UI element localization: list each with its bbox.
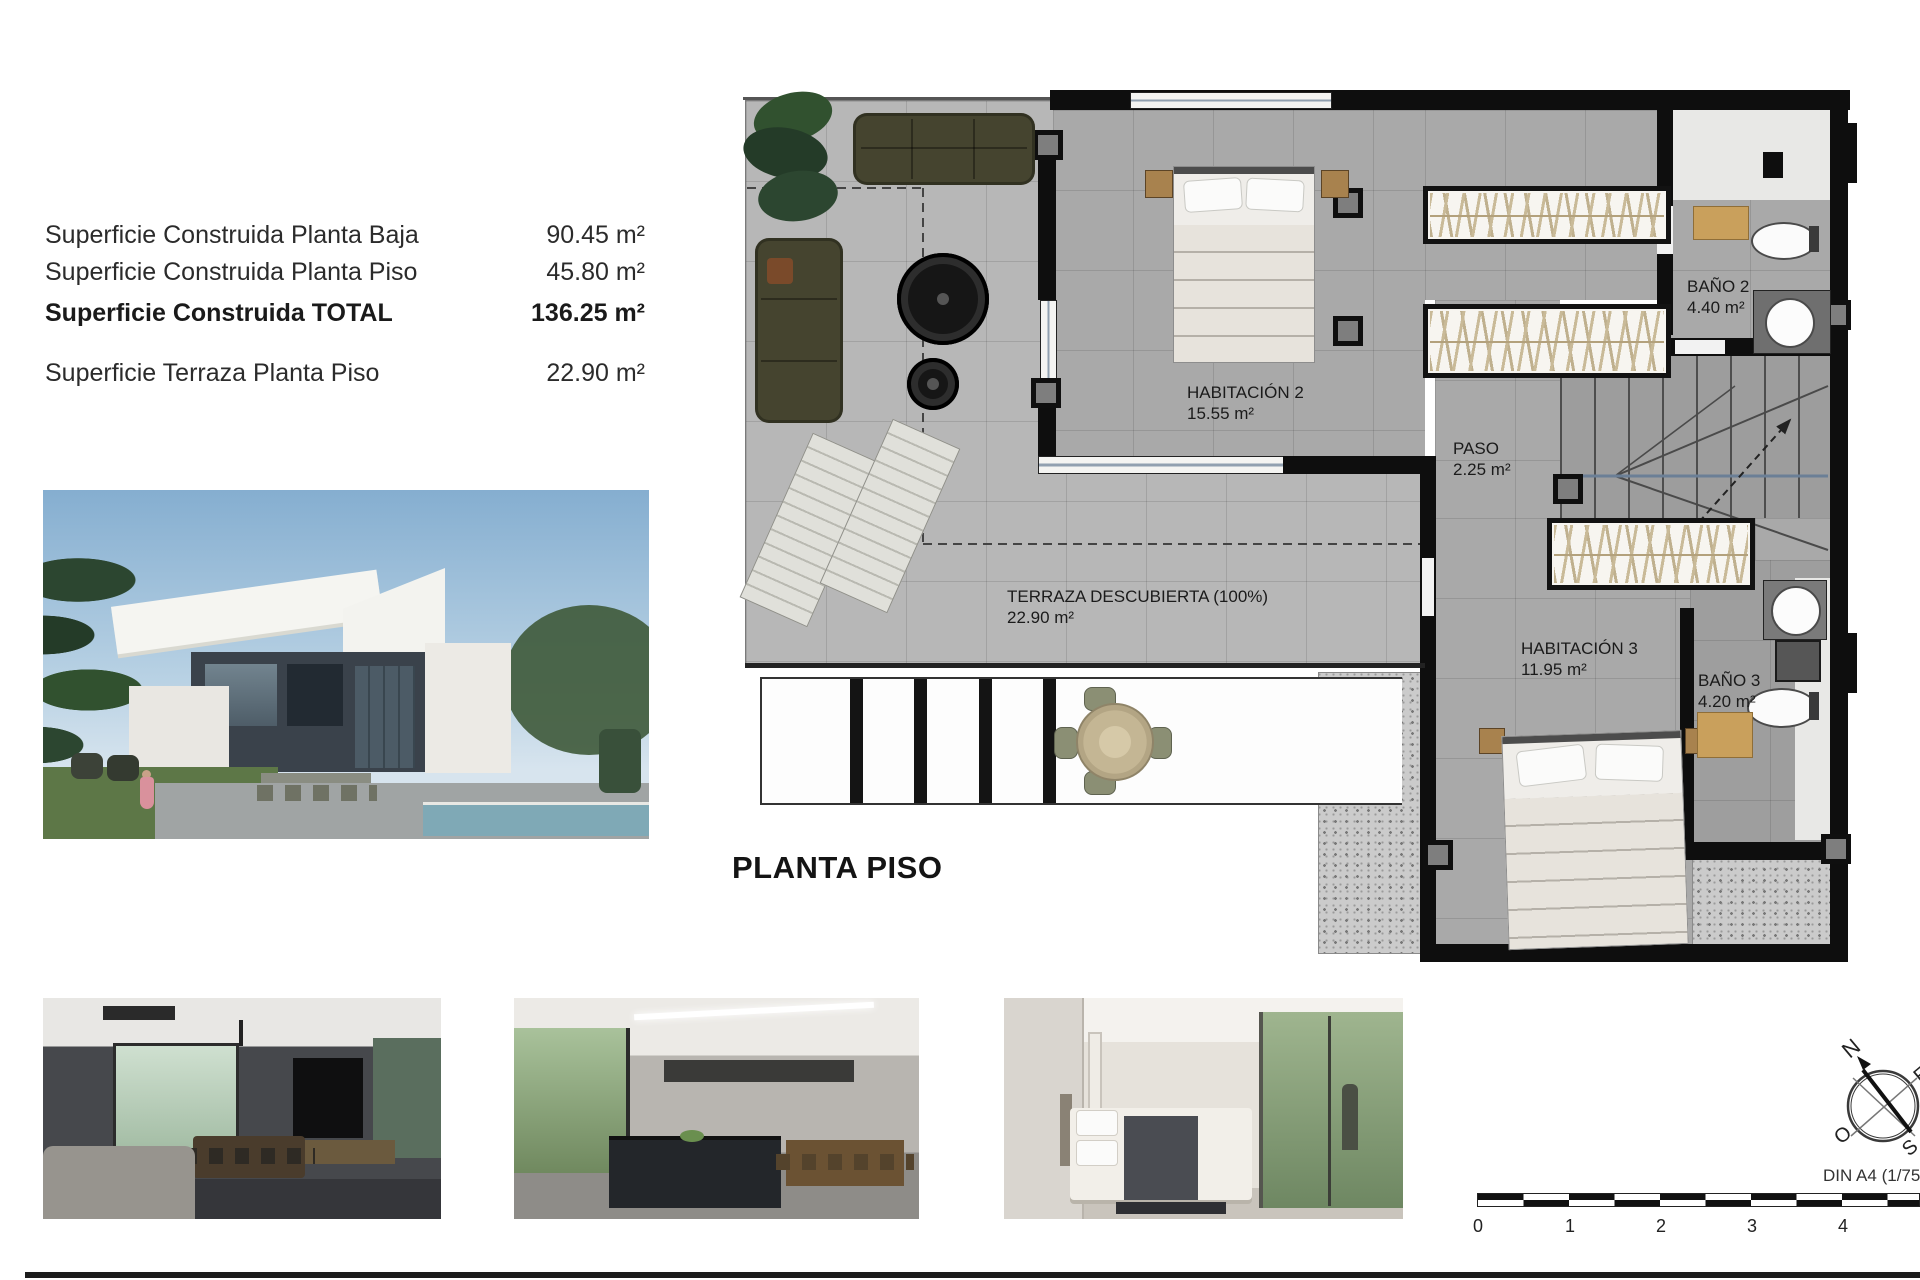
dining-chairs [257, 785, 377, 801]
dining-table [261, 773, 371, 783]
column [1031, 378, 1061, 408]
column [1423, 840, 1453, 870]
room-area: 15.55 m² [1187, 403, 1304, 424]
bottom-rule [25, 1272, 1920, 1278]
scale-bar: 0 1 2 3 4 [1477, 1193, 1920, 1207]
villa-exterior-photo [43, 490, 649, 839]
column [1333, 316, 1363, 346]
wall-fixture-top [1843, 123, 1857, 183]
pendant-lamp [239, 1020, 243, 1046]
bath3-toilet-tank [1809, 692, 1819, 720]
terrace-sofa-left [755, 238, 843, 423]
scale-tick: 1 [1565, 1216, 1575, 1237]
room-name: BAÑO 2 [1687, 276, 1749, 297]
area-row-total: Superficie Construida TOTAL 136.25 m² [45, 300, 645, 327]
area-label: Superficie Construida Planta Baja [45, 222, 419, 249]
bath3-mat [1697, 712, 1753, 758]
facade-window-dark [287, 664, 343, 726]
room-area: 2.25 m² [1453, 459, 1511, 480]
area-value: 136.25 m² [531, 300, 645, 327]
area-label: Superficie Construida TOTAL [45, 300, 393, 327]
room-area: 4.20 m² [1698, 691, 1760, 712]
dining-chairs [776, 1154, 914, 1170]
right-wall [1830, 90, 1848, 962]
area-summary-table: Superficie Construida Planta Baja 90.45 … [45, 222, 645, 387]
kitchen-island [609, 1136, 781, 1208]
din-format-label: DIN A4 (1/75 [1823, 1166, 1920, 1186]
room-name: PASO [1453, 438, 1511, 459]
room-name: HABITACIÓN 3 [1521, 638, 1638, 659]
wall-fixture-mid [1843, 633, 1857, 693]
room-label-bath3: BAÑO 3 4.20 m² [1698, 670, 1760, 712]
bath3-sink [1771, 586, 1821, 636]
interior-photo-living [43, 998, 441, 1219]
column [1033, 130, 1063, 160]
side-wall [425, 643, 511, 773]
area-row: Superficie Construida Planta Baja 90.45 … [45, 222, 645, 249]
area-value: 22.90 m² [546, 360, 645, 387]
room-area: 4.40 m² [1687, 297, 1749, 318]
bath2-toilet [1751, 222, 1817, 260]
room-name: HABITACIÓN 2 [1187, 382, 1304, 403]
room-name: BAÑO 3 [1698, 670, 1760, 691]
outdoor-chair [71, 753, 103, 779]
room-area: 22.90 m² [1007, 607, 1268, 628]
area-label: Superficie Terraza Planta Piso [45, 360, 379, 387]
pergola-chair [1054, 727, 1078, 759]
area-row: Superficie Construida Planta Piso 45.80 … [45, 259, 645, 286]
pillow [1076, 1140, 1118, 1166]
planter [599, 729, 641, 793]
bed-room2 [1173, 166, 1315, 363]
room-label-bath2: BAÑO 2 4.40 m² [1687, 276, 1749, 318]
bed-throw [1124, 1116, 1198, 1200]
bedroom3-left-wall [1420, 456, 1436, 960]
wardrobe [1423, 304, 1671, 378]
nightstand [1145, 170, 1173, 198]
pergola-bar [979, 679, 992, 803]
room-name: TERRAZA DESCUBIERTA (100%) [1007, 586, 1268, 607]
scale-tick: 3 [1747, 1216, 1757, 1237]
terrace-bottom-edge [745, 663, 1425, 668]
area-value: 90.45 m² [546, 222, 645, 249]
bench [1116, 1202, 1226, 1214]
wardrobe [1423, 186, 1671, 244]
scale-tick: 2 [1656, 1216, 1666, 1237]
area-row: Superficie Terraza Planta Piso 22.90 m² [45, 360, 645, 387]
ac-unit [103, 1006, 175, 1020]
pillow [1076, 1110, 1118, 1136]
upper-cabinets [664, 1060, 854, 1082]
room-label-paso: PASO 2.25 m² [1453, 438, 1511, 480]
glass-door [355, 666, 415, 768]
bedroom3-door [1422, 558, 1434, 616]
sofa [43, 1146, 195, 1219]
bedroom2-terrace-window [1038, 456, 1285, 474]
bath2-sink [1765, 298, 1815, 348]
interior-photo-kitchen [514, 998, 919, 1219]
area-label: Superficie Construida Planta Piso [45, 259, 417, 286]
bed-room3 [1501, 730, 1688, 950]
shower-fixture [1763, 152, 1783, 178]
bath2-mat [1693, 206, 1749, 240]
floor-plan-title: PLANTA PISO [732, 850, 942, 886]
bath2-toilet-tank [1809, 226, 1819, 252]
compass-icon: N E O S [1833, 1038, 1920, 1158]
round-table-large [897, 253, 989, 345]
pergola [760, 677, 1402, 805]
top-window [1130, 92, 1332, 109]
pergola-bar [914, 679, 927, 803]
room-label-bedroom2: HABITACIÓN 2 15.55 m² [1187, 382, 1304, 424]
bath3-shower [1775, 640, 1821, 682]
interior-photo-bedroom [1004, 998, 1403, 1219]
person-dress [140, 777, 154, 809]
tv-panel [293, 1058, 363, 1138]
glass-doors [1259, 1012, 1403, 1208]
compass-south-label: S [1898, 1135, 1920, 1158]
room-label-terrace: TERRAZA DESCUBIERTA (100%) 22.90 m² [1007, 586, 1268, 628]
column [1821, 834, 1851, 864]
terrace-sofa-top [853, 113, 1035, 185]
bath2-door-gap [1675, 340, 1725, 354]
bottom-wall [1420, 944, 1847, 962]
scale-tick: 4 [1838, 1216, 1848, 1237]
dining-chairs [183, 1148, 315, 1164]
pergola-bar [850, 679, 863, 803]
round-table-small [907, 358, 959, 410]
room-area: 11.95 m² [1521, 659, 1638, 680]
column [1553, 474, 1583, 504]
pool [423, 802, 649, 836]
pergola-table [1076, 703, 1154, 781]
wardrobe [1547, 518, 1755, 590]
door-frame [1328, 1016, 1331, 1206]
fruit-bowl [680, 1130, 704, 1142]
scale-bar-row [1478, 1200, 1919, 1206]
room-label-bedroom3: HABITACIÓN 3 11.95 m² [1521, 638, 1638, 680]
nightstand [1321, 170, 1349, 198]
bedroom2-left-wall [1038, 140, 1056, 300]
floor-plan: HABITACIÓN 2 15.55 m² PASO 2.25 m² BAÑO … [735, 88, 1865, 978]
plant [743, 93, 843, 233]
bedroom2-bottom-wall [1283, 456, 1423, 474]
outdoor-chair [107, 755, 139, 781]
compass-west-label: O [1833, 1122, 1856, 1149]
scale-tick: 0 [1473, 1216, 1483, 1237]
white-volume [129, 686, 229, 774]
person-silhouette [1342, 1084, 1358, 1150]
area-value: 45.80 m² [546, 259, 645, 286]
